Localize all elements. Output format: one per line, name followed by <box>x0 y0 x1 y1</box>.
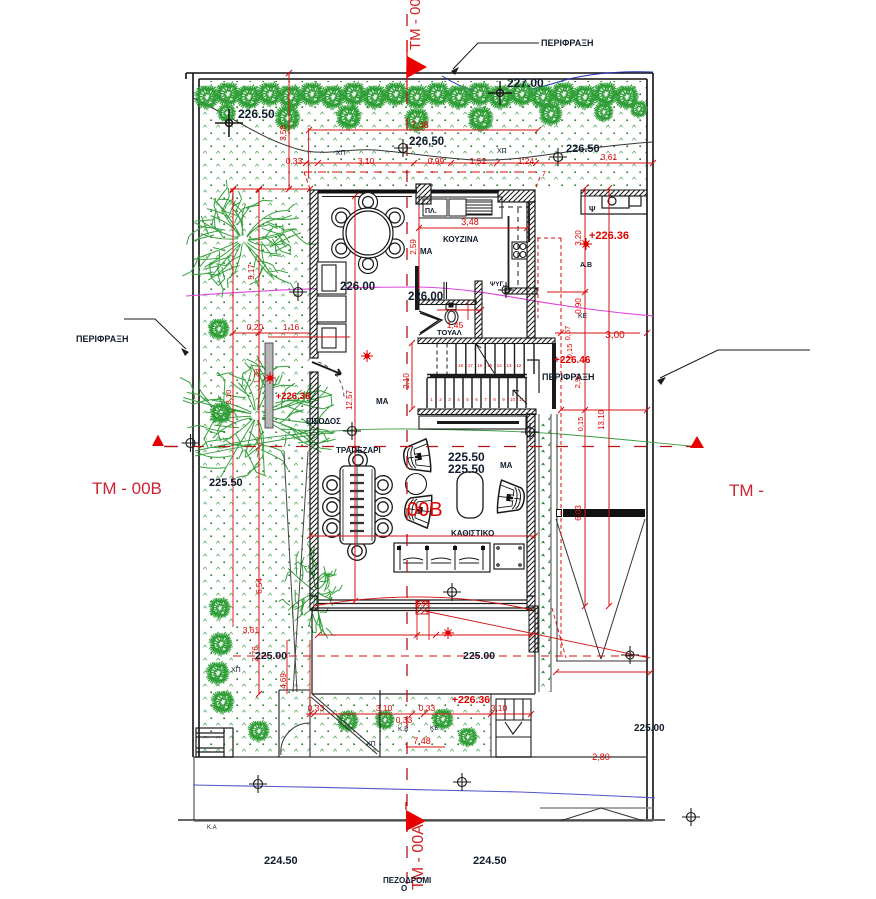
svg-text:ΕΙΣΟΔΟΣ: ΕΙΣΟΔΟΣ <box>306 417 341 426</box>
svg-text:ΤΡΑΠΕΖΑΡΙ: ΤΡΑΠΕΖΑΡΙ <box>336 446 381 455</box>
svg-text:+226.36: +226.36 <box>452 694 490 706</box>
svg-text:+226.36: +226.36 <box>276 391 311 402</box>
svg-text:225.00: 225.00 <box>463 650 495 662</box>
svg-text:3,48: 3,48 <box>461 217 479 227</box>
svg-text:17: 17 <box>468 363 474 368</box>
svg-text:ΧΠ: ΧΠ <box>497 148 507 155</box>
svg-text:225.00: 225.00 <box>255 650 287 662</box>
svg-text:ΚΕ: ΚΕ <box>430 725 439 732</box>
svg-text:ΜΑ: ΜΑ <box>500 461 513 470</box>
svg-text:ΤΜ -: ΤΜ - <box>729 481 764 500</box>
svg-text:14: 14 <box>497 363 503 368</box>
svg-text:2,80: 2,80 <box>592 752 610 762</box>
svg-text:3,10: 3,10 <box>491 703 508 713</box>
svg-text:0,33: 0,33 <box>286 156 303 166</box>
svg-text:ΤΜ - 00Α: ΤΜ - 00Α <box>407 0 424 50</box>
svg-text:10: 10 <box>510 397 516 402</box>
svg-text:2,10: 2,10 <box>402 373 411 389</box>
svg-text:3,10: 3,10 <box>224 390 233 405</box>
svg-text:3,58: 3,58 <box>279 125 288 141</box>
svg-text:ΧΠ: ΧΠ <box>336 150 346 157</box>
svg-text:0,20: 0,20 <box>247 322 264 332</box>
svg-text:ΧΠ: ΧΠ <box>231 667 241 674</box>
svg-text:3,20: 3,20 <box>574 230 583 246</box>
svg-text:ΧΠ: ΧΠ <box>366 741 376 748</box>
svg-text:3,00: 3,00 <box>605 330 625 341</box>
svg-text:6,03: 6,03 <box>574 505 583 521</box>
svg-text:225.50: 225.50 <box>448 462 485 476</box>
svg-text:6,90: 6,90 <box>417 602 429 608</box>
svg-text:ΚΑΘΙΣΤΙΚΟ: ΚΑΘΙΣΤΙΚΟ <box>451 529 494 538</box>
svg-text:0,15: 0,15 <box>576 417 585 432</box>
svg-text:ΜΑ: ΜΑ <box>420 247 433 256</box>
svg-text:6,54: 6,54 <box>255 578 264 594</box>
svg-text:3,10: 3,10 <box>358 156 375 166</box>
svg-text:+226.46: +226.46 <box>554 355 591 366</box>
svg-text:226.00: 226.00 <box>408 291 443 303</box>
svg-text:+226.36: +226.36 <box>589 230 629 242</box>
svg-text:ΨΥΓ.: ΨΥΓ. <box>490 281 505 288</box>
svg-text:ΠΛ.: ΠΛ. <box>425 208 437 215</box>
svg-text:0,99: 0,99 <box>428 156 445 166</box>
svg-text:226.50: 226.50 <box>238 107 275 121</box>
svg-text:0,33: 0,33 <box>396 715 413 725</box>
svg-text:ΚΕ: ΚΕ <box>578 313 588 320</box>
svg-text:Κ.Β: Κ.Β <box>398 726 408 733</box>
svg-text:1,16: 1,16 <box>283 322 300 332</box>
svg-text:226.00: 226.00 <box>340 281 375 293</box>
svg-text:0,33: 0,33 <box>308 703 325 713</box>
svg-text:ΠΕΡΙΦΡΑΞΗ: ΠΕΡΙΦΡΑΞΗ <box>541 38 594 48</box>
svg-text:225.50: 225.50 <box>209 477 243 489</box>
svg-text:227.00: 227.00 <box>507 76 544 90</box>
svg-text:16: 16 <box>477 363 483 368</box>
svg-text:Α.Β: Α.Β <box>580 262 592 269</box>
svg-text:12: 12 <box>516 363 522 368</box>
svg-text:0,57: 0,57 <box>563 326 572 341</box>
svg-text:7,48: 7,48 <box>411 120 429 130</box>
svg-text:13: 13 <box>506 363 512 368</box>
svg-text:13,10: 13,10 <box>597 409 606 430</box>
svg-text:224.50: 224.50 <box>264 855 298 867</box>
svg-text:5,17: 5,17 <box>247 264 256 280</box>
svg-text:ΠΕΡΙΦΡΑΞΗ: ΠΕΡΙΦΡΑΞΗ <box>542 372 595 382</box>
svg-text:18: 18 <box>458 363 464 368</box>
svg-text:7,48: 7,48 <box>413 736 431 746</box>
svg-text:0,90: 0,90 <box>574 298 583 314</box>
svg-text:3,61: 3,61 <box>243 625 260 635</box>
svg-text:Κ.Α: Κ.Α <box>207 825 217 831</box>
svg-text:225.00: 225.00 <box>634 723 665 734</box>
svg-text:00Β: 00Β <box>407 499 443 521</box>
svg-text:2,59: 2,59 <box>409 239 418 255</box>
svg-text:ΤΜ - 00Β: ΤΜ - 00Β <box>92 479 162 498</box>
svg-text:1,39: 1,39 <box>252 369 261 384</box>
svg-text:ΠΕΡΙΦΡΑΞΗ: ΠΕΡΙΦΡΑΞΗ <box>76 334 129 344</box>
svg-text:1,52: 1,52 <box>470 156 487 166</box>
svg-text:Ο: Ο <box>401 884 407 893</box>
svg-text:226.50: 226.50 <box>566 143 600 155</box>
svg-text:1,45: 1,45 <box>447 320 464 330</box>
svg-text:11: 11 <box>519 397 524 402</box>
svg-text:1,24: 1,24 <box>518 156 535 166</box>
svg-text:Ψ: Ψ <box>589 205 596 214</box>
svg-text:3,10: 3,10 <box>376 703 393 713</box>
svg-text:0,33: 0,33 <box>419 703 436 713</box>
svg-text:226,50: 226,50 <box>409 136 444 148</box>
svg-text:ΜΑ: ΜΑ <box>376 397 389 406</box>
svg-text:12,57: 12,57 <box>345 389 354 410</box>
svg-text:3,61: 3,61 <box>601 152 618 162</box>
svg-text:15: 15 <box>487 363 493 368</box>
svg-text:ΚΟΥΖΙΝΑ: ΚΟΥΖΙΝΑ <box>443 235 479 244</box>
svg-text:7: 7 <box>542 171 546 178</box>
svg-text:224.50: 224.50 <box>473 855 507 867</box>
